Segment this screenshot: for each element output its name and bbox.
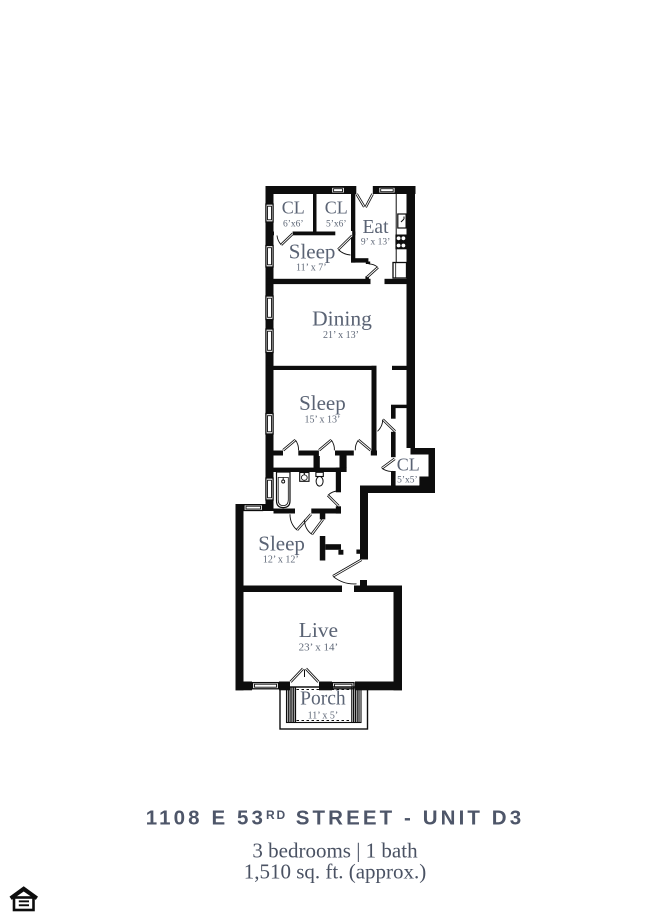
svg-text:Sleep: Sleep (258, 532, 305, 556)
svg-text:Porch: Porch (300, 689, 346, 710)
svg-text:5’x5’: 5’x5’ (397, 476, 418, 486)
svg-text:CL: CL (325, 197, 348, 217)
svg-text:9’ x 13’: 9’ x 13’ (361, 237, 390, 247)
svg-text:Sleep: Sleep (299, 391, 346, 415)
svg-text:1,510 sq. ft. (approx.): 1,510 sq. ft. (approx.) (244, 860, 427, 884)
svg-text:5’x6’: 5’x6’ (326, 219, 347, 229)
svg-text:Eat: Eat (363, 217, 390, 238)
svg-text:Sleep: Sleep (289, 239, 336, 263)
svg-text:11’ x 5’: 11’ x 5’ (308, 710, 339, 721)
svg-text:CL: CL (282, 197, 305, 217)
svg-text:23’ x 14’: 23’ x 14’ (299, 642, 339, 654)
svg-text:11’ x 7’: 11’ x 7’ (296, 262, 327, 273)
svg-text:Live: Live (299, 618, 338, 642)
svg-text:21’ x 13’: 21’ x 13’ (323, 330, 359, 341)
svg-text:15’ x 13’: 15’ x 13’ (304, 415, 340, 426)
svg-text:12’ x 12’: 12’ x 12’ (263, 555, 299, 566)
svg-text:6’x6’: 6’x6’ (283, 219, 304, 229)
svg-text:1108 E 53RD STREET - UNIT D3: 1108 E 53RD STREET - UNIT D3 (146, 807, 524, 830)
svg-text:CL: CL (397, 455, 420, 475)
svg-text:Dining: Dining (312, 307, 372, 331)
